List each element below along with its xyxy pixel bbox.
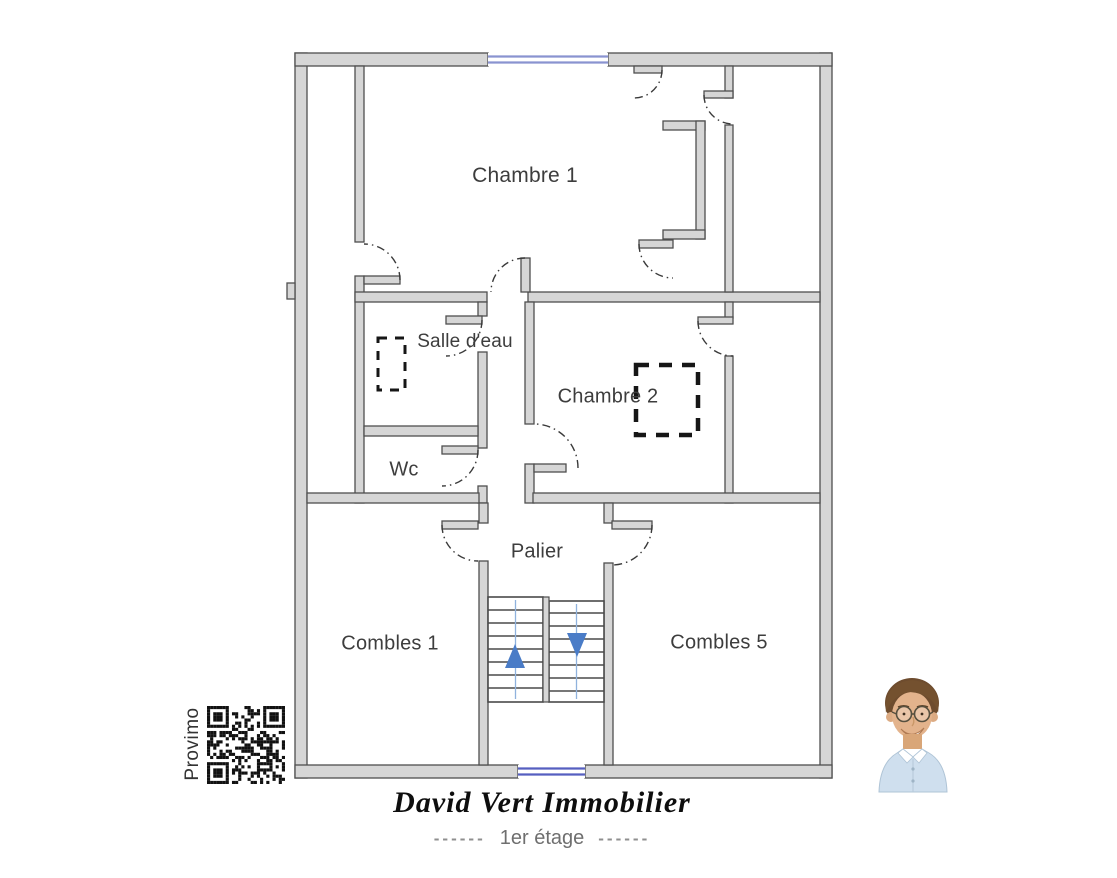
dashed-outline-salle-deau (378, 338, 405, 390)
floor-plan-drawing (0, 0, 1117, 878)
caption-dash-right: ------ (598, 829, 650, 849)
room-label-chambre-1: Chambre 1 (472, 164, 578, 188)
agent-photo (861, 671, 963, 792)
floor-label: 1er étage (500, 827, 585, 850)
staircase (488, 597, 604, 702)
caption-dash-left: ------ (434, 829, 486, 849)
window-top (488, 53, 608, 66)
qr-code (204, 703, 288, 787)
provider-label: Provimo (182, 707, 204, 780)
agency-name: David Vert Immobilier (393, 786, 691, 820)
room-label-chambre-2: Chambre 2 (558, 386, 659, 409)
floor-caption: ------ 1er étage ------ (434, 827, 650, 850)
listing-floor-plan-page: Chambre 1 Salle d'eau Wc Chambre 2 Palie… (0, 0, 1117, 878)
chimney-block (663, 121, 705, 239)
room-label-combles-5: Combles 5 (670, 632, 767, 655)
room-label-wc: Wc (389, 459, 418, 482)
room-label-combles-1: Combles 1 (341, 633, 438, 656)
window-bottom (518, 765, 585, 778)
room-label-palier: Palier (511, 541, 563, 564)
room-label-salle-deau: Salle d'eau (417, 331, 513, 353)
door-swing-arcs (364, 70, 733, 565)
